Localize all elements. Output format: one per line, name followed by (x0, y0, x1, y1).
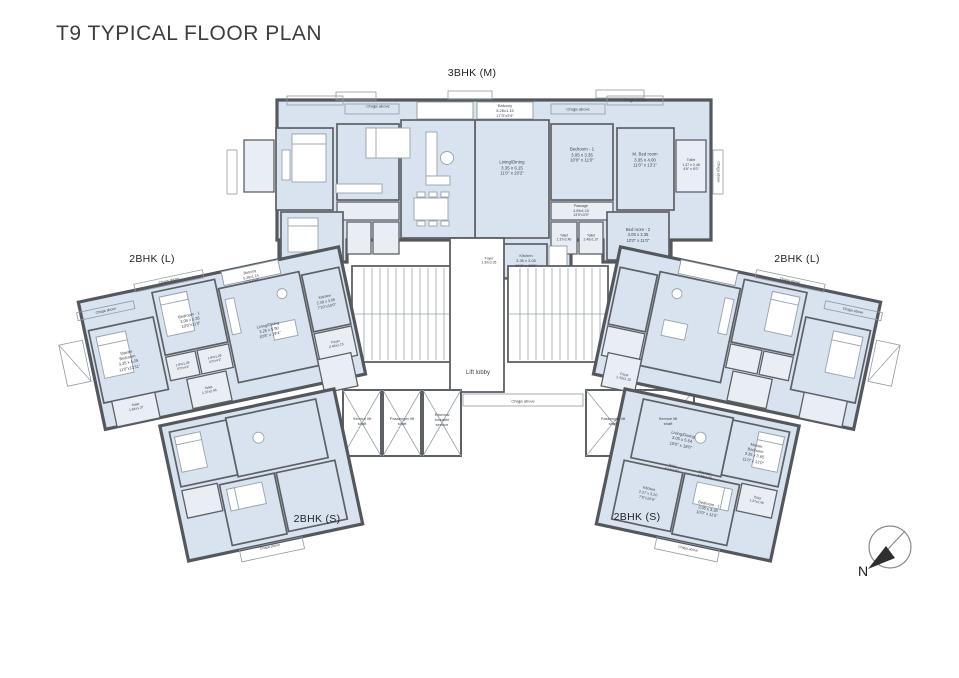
room-label: Toilet 2.46x1.37 (584, 234, 599, 243)
room-label: M. Bed room 3.35 x 4.00 11'0" x 13'1" (632, 151, 657, 168)
shaft-label: External lockable service (435, 412, 450, 428)
chajja-label: Chajja above (366, 103, 389, 108)
room-label: Kitchen 3.35 x 3.05 11'0" x 10'0" (515, 253, 537, 269)
shaft-label: Service lift shaft (353, 416, 371, 426)
staircase-right (508, 266, 608, 362)
room-label: Bed room - 2 3.05 x 3.35 10'0" x 11'0" (626, 227, 650, 243)
balcony-label: Balcony 5.26x1.15 17'3"x3'9" (496, 103, 514, 119)
room-label: Toilet 1.37x2.46 (557, 234, 572, 243)
unit-label-2bhk-l-left: 2BHK (L) (129, 253, 175, 265)
page-title: T9 TYPICAL FLOOR PLAN (56, 22, 322, 46)
compass (868, 526, 911, 569)
floor-plan-drawing (0, 0, 959, 678)
lobby-label: Lift lobby (466, 370, 490, 378)
floor-plan-canvas: T9 TYPICAL FLOOR PLAN 3BHK (M) 2BHK (L) … (0, 0, 959, 678)
chajja-label: Chajja above (511, 398, 534, 403)
room-label: Passage 4.09x1.15 13'5"x3'9" (573, 204, 589, 218)
north-label: N (858, 563, 868, 579)
room-label: Toilet 1.37 x 2.46 4'6" x 8'0" (682, 158, 700, 172)
unit-label-2bhk-s-left: 2BHK (S) (294, 513, 341, 525)
chajja-label: Chajja above (716, 162, 721, 183)
chajja-label: Chajja above (623, 97, 646, 102)
unit-label-3bhk-m: 3BHK (M) (448, 67, 497, 79)
unit-label-2bhk-l-right: 2BHK (L) (774, 253, 820, 265)
chajja-label: Chajja above (566, 106, 589, 111)
room-label: Foyer 1.50x2.35 (482, 257, 497, 266)
shaft-label: Service lift shaft (659, 416, 677, 426)
shaft-label: Passenger lift shaft (601, 416, 625, 426)
unit-label-2bhk-s-right: 2BHK (S) (614, 511, 661, 523)
room-label: Master Bedroom 3.35 x 3.65 11'0" x 12'0" (742, 441, 767, 466)
shaft-label: Passenger lift shaft (390, 416, 414, 426)
room-label: Living/Dining 3.35 x 6.15 11'0" x 20'2" (499, 159, 524, 176)
staircase-left (352, 266, 452, 362)
room-label: Master Bedroom 3.35 x 4.25 11'0"x13'11" (115, 348, 140, 373)
room-label: Bedroom - 1 3.05 x 3.35 10'0" x 11'0" (570, 146, 594, 163)
